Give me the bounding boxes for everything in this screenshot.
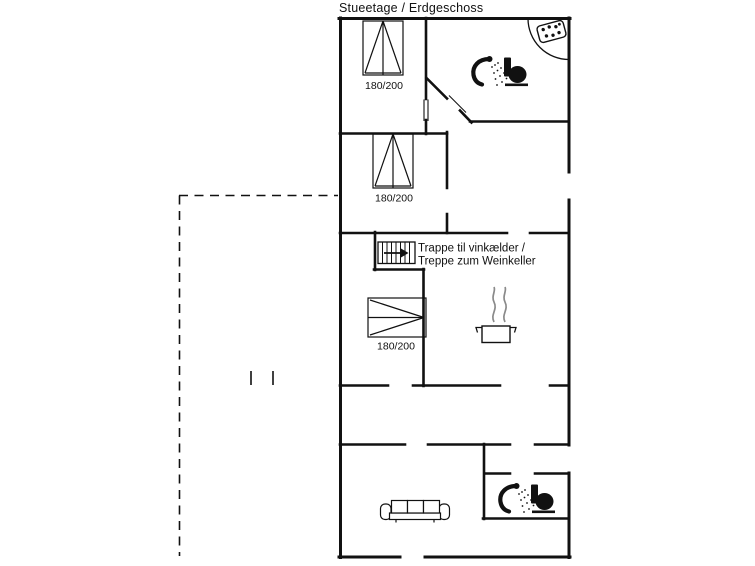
steam-line <box>504 287 506 322</box>
toilet-icon <box>531 485 555 514</box>
stairs-down-icon <box>378 242 415 264</box>
bathroom-bottom-icons <box>500 483 555 513</box>
exterior-walls <box>339 18 570 558</box>
bed-3-icon <box>368 298 426 337</box>
plan-title: Stueetage / Erdgeschoss <box>339 1 483 15</box>
floor-plan: Stueetage / Erdgeschoss <box>0 0 755 566</box>
bed-1-size-label: 180/200 <box>365 80 403 92</box>
stairs-note-line2: Treppe zum Weinkeller <box>418 256 536 268</box>
bedroom1-door-jambs <box>424 100 428 122</box>
cooking-pot-icon <box>476 287 516 343</box>
steam-line <box>493 287 495 322</box>
bed-2-size-label: 180/200 <box>375 193 413 205</box>
bathroom-top-icons <box>473 56 528 86</box>
toilet-icon <box>504 58 528 87</box>
terrace-outline <box>179 196 338 557</box>
interior-walls <box>340 18 569 519</box>
shower-icon <box>473 56 507 86</box>
whirlpool-icon <box>528 19 569 60</box>
sofa-icon <box>381 501 450 523</box>
terrace-opening-marks <box>251 371 273 385</box>
door-opening-markers <box>424 96 466 122</box>
stairs-note-line1: Trappe til vinkælder / <box>418 243 526 255</box>
floor-plan-page: Stueetage / Erdgeschoss <box>0 0 755 566</box>
bathroom-door-leaf <box>449 96 466 113</box>
bed-3-size-label: 180/200 <box>377 341 415 353</box>
bed-1-icon <box>363 21 403 75</box>
bed-2-icon <box>373 134 413 188</box>
shower-icon <box>500 483 534 513</box>
